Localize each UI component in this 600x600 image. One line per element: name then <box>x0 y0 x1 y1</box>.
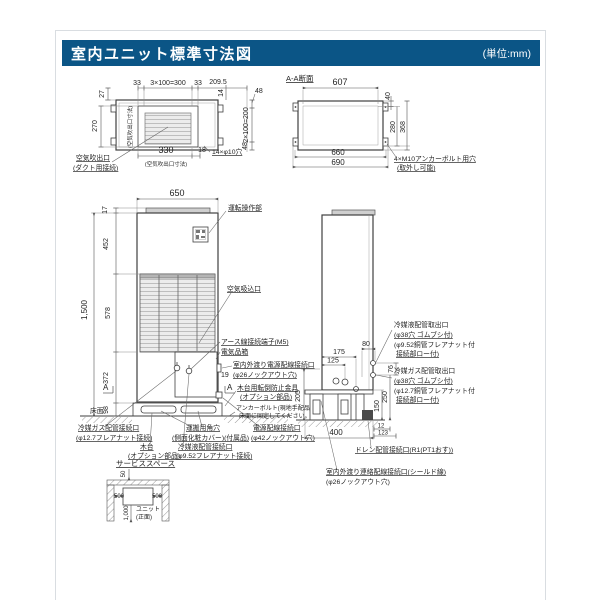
label-carry-hole: 運搬用角穴 <box>186 423 220 432</box>
liquid-pipe-outlet-hole <box>371 361 376 366</box>
label-liquid-pipe-2: (φ9.52フレアナット接続) <box>176 451 252 460</box>
dim-452: 452 <box>103 238 110 250</box>
label-unit-front-2: (正面) <box>136 514 152 521</box>
note-bolt-holes: 14×φ10穴 <box>212 147 242 156</box>
label-tip-guard: 木台用転倒防止金具 <box>237 383 298 392</box>
dim-14: 14 <box>218 89 225 97</box>
dim-660: 660 <box>331 148 345 157</box>
note-outlet-dim-left: (空気吹出口寸法) <box>126 106 134 148</box>
wall-top <box>107 480 169 485</box>
dim-80: 80 <box>362 341 370 348</box>
label-liquid-outlet: 冷媒液配管取出口 <box>394 320 448 329</box>
label-anchor-bolt-holes: 4×M10アンカーボルト用穴 <box>394 154 476 163</box>
label-liquid-outlet-2: (φ38穴 ゴムブシ付) <box>394 330 453 339</box>
dim-12: 12 <box>378 424 385 430</box>
label-crossover-power-2: (φ26ノックアウト穴) <box>233 370 297 379</box>
control-panel-icon <box>193 227 208 242</box>
note-outlet-dim-bottom: (空気吹出口寸法) <box>145 160 187 168</box>
dim-1000: 1,000 <box>124 505 130 521</box>
dim-1500: 1,500 <box>80 299 89 320</box>
dim-500-right: 500 <box>152 494 163 500</box>
label-carry-hole-2: (側面化粧カバー)(付属品) <box>172 433 249 442</box>
unit-front-outline <box>123 488 153 505</box>
wall-right <box>162 485 169 521</box>
label-tip-guard-2: (オプション部品) <box>240 392 292 401</box>
dim-400: 400 <box>329 428 343 437</box>
label-gas-outlet-2: (φ38穴 ゴムブシ付) <box>394 376 453 385</box>
label-control-panel: 運転操作部 <box>228 203 262 212</box>
dim-175: 175 <box>333 349 345 356</box>
label-liquid-pipe: 冷媒液配管接続口 <box>178 442 232 451</box>
top-view-diagram: 33 3×100=300 33 209.5 14 48 2×100=200 48… <box>73 79 263 172</box>
dim-607: 607 <box>332 77 347 87</box>
dim-48-bottom: 48 <box>242 142 249 150</box>
dim-17: 17 <box>102 206 109 214</box>
section-mark-a-right: A <box>227 383 233 392</box>
label-gas-outlet-3: (φ12.7銅管フレアナット付 <box>394 386 475 395</box>
section-mark-a-left: A <box>103 383 109 392</box>
dim-280: 280 <box>390 121 397 133</box>
dim-18: 18 <box>198 147 206 154</box>
dim-2x100: 2×100=200 <box>243 107 250 143</box>
section-aa-diagram: A-A断面 607 40 280 368 660 690 4×M10アンカーボル… <box>286 73 476 172</box>
label-gas-pipe: 冷媒ガス配管接続口 <box>78 423 139 432</box>
label-air-outlet-duct: (ダクト用接続) <box>73 163 118 172</box>
label-wood-base: 木台 <box>140 442 154 451</box>
label-crossover-power: 室内外渡り電源配線接続口 <box>233 360 315 369</box>
dim-578: 578 <box>105 307 112 319</box>
label-gas-outlet-4: 接続部ロー付) <box>396 395 439 404</box>
side-view-diagram: 175 125 80 205 76 250 150 12 123 400 冷媒液… <box>295 210 475 486</box>
label-liquid-outlet-4: 接続部ロー付) <box>396 349 439 358</box>
label-anchor-bolt-holes-2: (取外し可能) <box>397 163 436 172</box>
label-electric-box: 電気品箱 <box>221 347 248 356</box>
dim-27: 27 <box>99 90 106 98</box>
dim-33-left: 33 <box>133 80 141 87</box>
base-leg-right <box>338 394 351 420</box>
section-title: A-A断面 <box>286 73 314 83</box>
gas-pipe-outlet-hole <box>371 373 376 378</box>
base-leg-left <box>310 394 323 420</box>
label-gas-pipe-2: (φ12.7フレアナット接続) <box>76 433 152 442</box>
gas-pipe-connector <box>174 365 180 371</box>
label-air-outlet: 空気吹出口 <box>76 153 110 162</box>
dim-48-top: 48 <box>255 88 263 95</box>
label-earth-terminal: アース線接続端子(M5) <box>221 337 289 346</box>
note-anchor-bolt-2: 床面に固定してください。 <box>239 412 311 420</box>
dim-368: 368 <box>400 121 407 133</box>
liquid-pipe-connector <box>186 368 192 374</box>
knockout-26 <box>217 364 221 372</box>
dim-209-5: 209.5 <box>209 79 227 86</box>
front-view-diagram: 650 17 452 578 372 98 1,500 A A 運転操作部 空気… <box>76 188 318 460</box>
label-liquid-outlet-3: (φ9.52銅管フレアナット付 <box>394 340 475 349</box>
knockout-42 <box>216 392 222 398</box>
dim-270: 270 <box>92 120 99 132</box>
floor-hatch-left <box>82 417 132 423</box>
dim-500-left: 500 <box>114 494 125 500</box>
dim-98: 98 <box>103 406 110 414</box>
intake-grille <box>140 274 215 352</box>
dim-205: 205 <box>295 390 302 402</box>
dim-330: 330 <box>158 145 173 155</box>
drain-elbow <box>362 410 373 420</box>
label-signal-wiring: 室内外渡り連絡配線接続口(シールド線) <box>326 467 446 476</box>
note-anchor-bolt: アンカーボルト(現地手配品)で <box>236 404 318 412</box>
dim-650: 650 <box>169 188 184 198</box>
label-power-port-2: (φ42ノックアウト穴) <box>251 433 315 442</box>
floor-hatch-side <box>298 421 378 427</box>
dim-50: 50 <box>121 470 127 477</box>
service-space-title: サービススペース <box>116 459 175 468</box>
top-cap <box>146 208 210 213</box>
label-power-port: 電源配線接続口 <box>253 423 301 432</box>
label-drain-port: ドレン配管接続口(R1(PT1おす)) <box>355 445 453 454</box>
dim-150: 150 <box>374 400 381 412</box>
dim-250: 250 <box>382 391 389 403</box>
dim-33-right: 33 <box>194 80 202 87</box>
dim-690: 690 <box>331 158 345 167</box>
wall-left <box>107 485 114 521</box>
dim-40: 40 <box>385 92 392 100</box>
wood-base <box>133 403 222 416</box>
dim-19: 19 <box>221 372 229 379</box>
service-space-diagram: サービススペース 50 500 500 1,000 ユニット (正面) <box>107 459 175 522</box>
duct-louver <box>145 113 191 144</box>
dim-3x100: 3×100=300 <box>150 80 186 87</box>
label-signal-wiring-2: (φ26ノックアウト穴) <box>326 477 390 486</box>
label-gas-outlet: 冷媒ガス配管取出口 <box>394 366 455 375</box>
label-floor: 床面 <box>90 406 104 415</box>
label-unit-front: ユニット <box>136 506 160 513</box>
technical-drawing: 33 3×100=300 33 209.5 14 48 2×100=200 48… <box>0 0 600 600</box>
side-top-cap <box>332 210 375 215</box>
label-air-intake: 空気吸込口 <box>227 284 261 293</box>
dim-123: 123 <box>378 431 389 437</box>
dim-125: 125 <box>327 358 339 365</box>
